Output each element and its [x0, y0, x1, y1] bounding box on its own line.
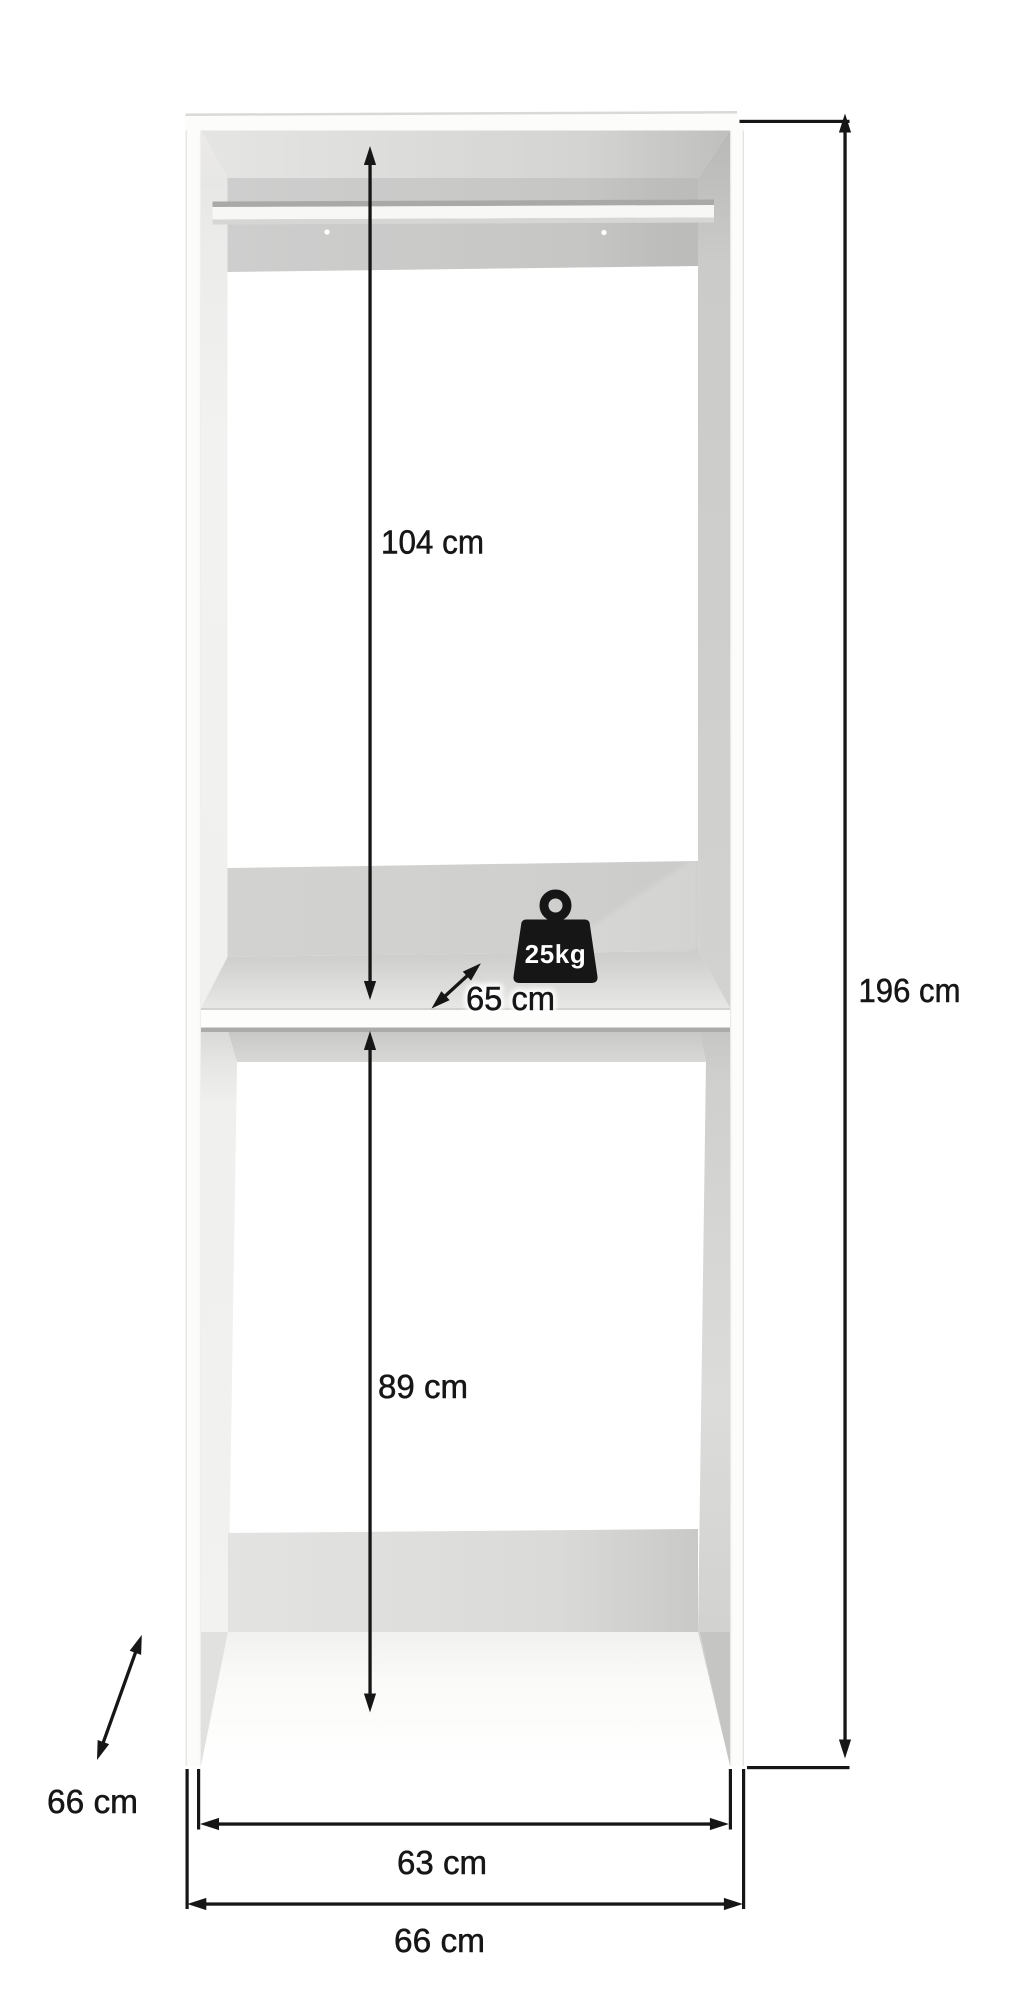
- svg-text:66 cm: 66 cm: [47, 1784, 138, 1821]
- svg-text:66 cm: 66 cm: [394, 1923, 485, 1960]
- svg-text:89 cm: 89 cm: [378, 1369, 468, 1406]
- svg-text:104 cm: 104 cm: [381, 525, 484, 562]
- svg-text:25kg: 25kg: [525, 939, 587, 969]
- svg-text:196 cm: 196 cm: [859, 973, 961, 1010]
- svg-text:63 cm: 63 cm: [397, 1845, 487, 1882]
- svg-text:65 cm: 65 cm: [466, 981, 555, 1018]
